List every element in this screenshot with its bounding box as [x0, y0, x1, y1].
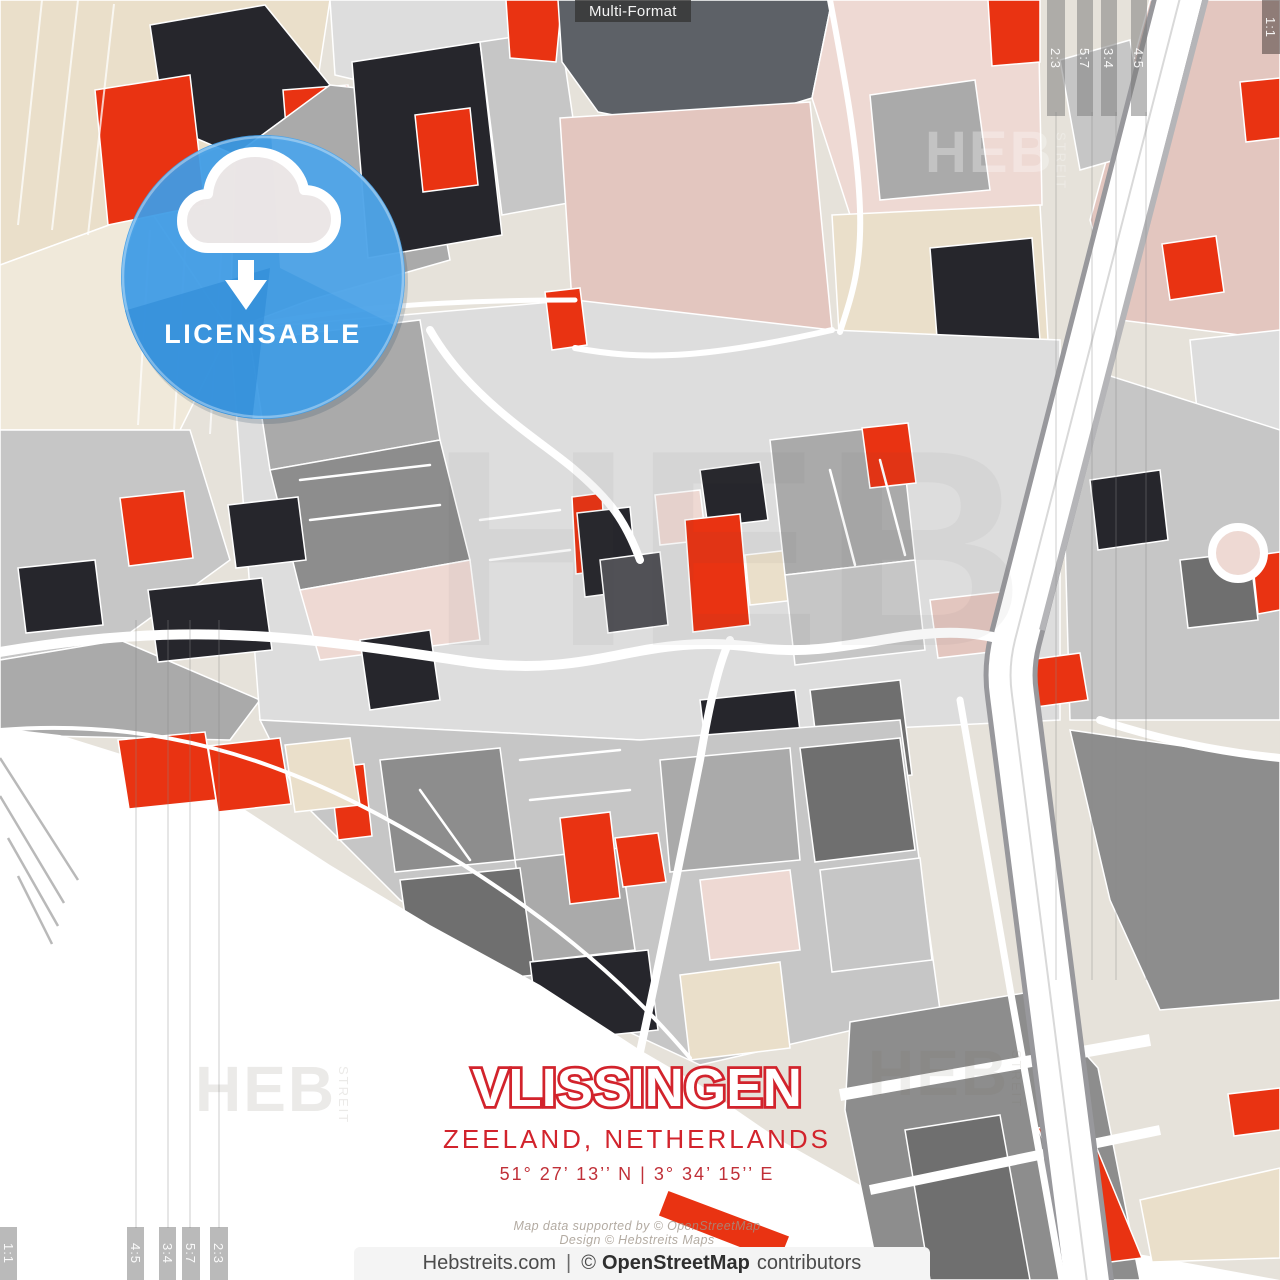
license-badge: LICENSABLE	[110, 128, 410, 428]
ratio-band-bottom-4-5: 4:5	[127, 1227, 144, 1280]
osm-contributors: contributors	[757, 1252, 862, 1275]
format-badge-label: Multi-Format	[589, 3, 677, 20]
design-credits: Map data supported by © OpenStreetMap De…	[513, 1219, 760, 1247]
ratio-band-bottom-3-4: 3:4	[159, 1227, 176, 1280]
credits-line-2: Design © Hebstreits Maps	[513, 1233, 760, 1247]
attribution-bar: Hebstreits.com | © OpenStreetMap contrib…	[354, 1247, 930, 1280]
city-title: VLISSINGEN	[472, 1058, 802, 1118]
copyright-symbol: ©	[581, 1252, 596, 1275]
osm-attribution: OpenStreetMap	[602, 1252, 750, 1275]
region-subtitle: ZEELAND, NETHERLANDS	[337, 1124, 937, 1155]
title-block: VLISSINGEN ZEELAND, NETHERLANDS 51° 27’ …	[337, 1058, 937, 1185]
site-name: Hebstreits.com	[423, 1252, 556, 1275]
license-badge-label: LICENSABLE	[164, 319, 362, 349]
format-badge: Multi-Format	[575, 0, 691, 22]
credits-line-1: Map data supported by © OpenStreetMap	[513, 1219, 760, 1233]
city-title-graphic: VLISSINGEN	[457, 1058, 817, 1120]
ratio-band-top-2-3: 2:3	[1047, 0, 1065, 116]
ratio-band-bottom-5-7: 5:7	[182, 1227, 200, 1280]
ratio-band-top-5-7: 5:7	[1077, 0, 1093, 116]
license-badge-graphic: LICENSABLE	[110, 128, 410, 428]
map-poster-preview: HEB HEB STREIT HEB STREIT HEB STREIT Mul…	[0, 0, 1280, 1280]
map-coast-layer	[118, 732, 360, 812]
ratio-band-bottom-2-3: 2:3	[210, 1227, 228, 1280]
ratio-band-top-3-4: 3:4	[1101, 0, 1117, 116]
ratio-band-top-4-5: 4:5	[1131, 0, 1147, 116]
attribution-separator: |	[566, 1252, 571, 1275]
ratio-band-bottom-1-1: 1:1	[0, 1227, 17, 1280]
coordinates: 51° 27’ 13’’ N | 3° 34’ 15’’ E	[337, 1164, 937, 1185]
ratio-band-top-1-1: 1:1	[1262, 0, 1280, 54]
